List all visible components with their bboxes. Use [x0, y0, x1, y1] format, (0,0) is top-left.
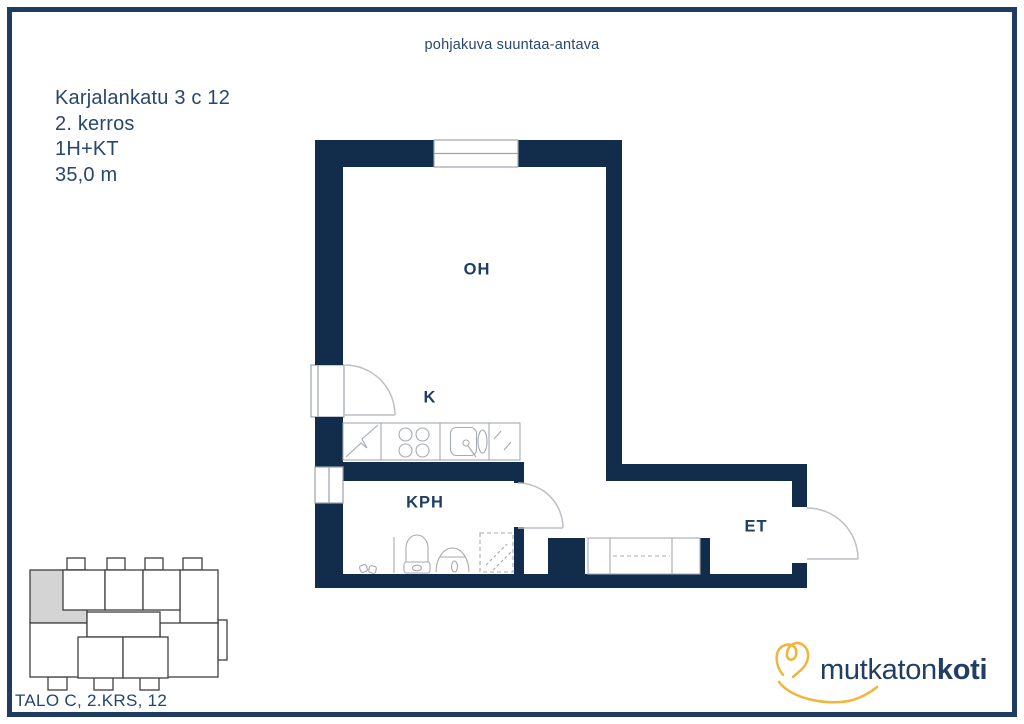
washbasin-icon: [436, 548, 469, 572]
wardrobe-icon: [588, 538, 700, 574]
building-minimap: [28, 552, 230, 692]
room-label-k: K: [424, 389, 437, 408]
room-label-kph: KPH: [406, 494, 444, 513]
room-label-et: ET: [744, 518, 767, 537]
brand-logo: mutkatonkoti: [820, 654, 987, 687]
duct-block: [548, 538, 585, 574]
entrance-door-swing: [807, 508, 858, 559]
brand-name-regular: mutkaton: [820, 654, 937, 686]
balcony-door-frame: [311, 365, 344, 417]
floor-drain-icon: [359, 564, 377, 574]
minimap-caption: TALO C, 2.KRS, 12: [15, 691, 167, 711]
brand-name-bold: koti: [937, 654, 987, 686]
floorplan-page: pohjakuva suuntaa-antava Karjalankatu 3 …: [0, 0, 1024, 724]
toilet-icon: [404, 535, 430, 573]
walls: [315, 140, 807, 588]
kitchen-counter: [343, 423, 520, 460]
living-room-window: [434, 140, 518, 167]
washer-reservation-icon: [480, 533, 513, 572]
room-label-oh: OH: [464, 261, 491, 280]
bathroom-window: [315, 467, 343, 503]
balcony-door-swing: [345, 365, 395, 415]
bathroom-door-swing: [518, 483, 563, 528]
